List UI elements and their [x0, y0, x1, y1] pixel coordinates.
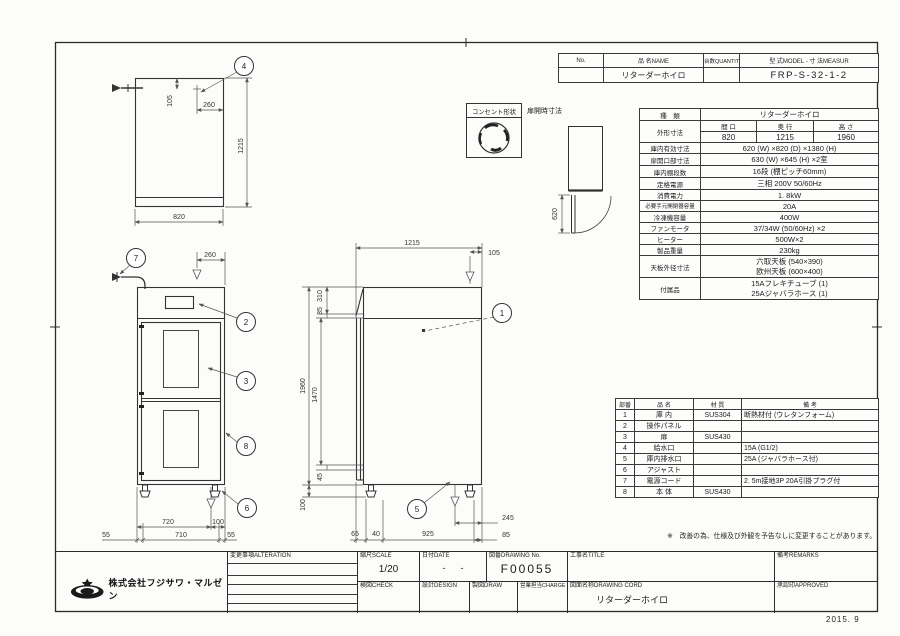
parts-cell-no: 2 [616, 421, 635, 432]
parts-cell-no: 3 [616, 432, 635, 443]
spec-row-label: ヒーター [640, 234, 701, 245]
qty-header: 台数QUANTITY [704, 54, 740, 68]
parts-cell-no: 7 [616, 476, 635, 487]
parts-row: 2操作パネル [616, 421, 879, 432]
parts-cell-name: 電源コード [635, 476, 694, 487]
remarks-label: 備考REMARKS [775, 552, 878, 560]
parts-cell-material [694, 443, 742, 454]
outlet-shape-box: コンセント形状 [467, 104, 522, 158]
side-dim-1470: 1470 [312, 387, 319, 403]
side-legs [366, 485, 475, 497]
company-name: 株式会社フジサワ・マルゼン [108, 576, 227, 602]
spec-row-label: 定格電源 [640, 178, 701, 190]
plan-dim-820: 820 [173, 214, 185, 221]
svg-text:7: 7 [134, 254, 139, 263]
parts-cell-name: 庫内排水口 [635, 454, 694, 465]
spec-table: 種 類 リターダーホイロ 外形寸法 間 口 奥 行 高 さ 820 1215 1… [639, 108, 879, 300]
parts-cell-material [694, 476, 742, 487]
spec-row-line1: 15Aフレキチューブ (1) [701, 279, 878, 289]
parts-cell-name: 給水口 [635, 443, 694, 454]
parts-cell-no: 6 [616, 465, 635, 476]
parts-cell-no: 5 [616, 454, 635, 465]
spec-row-label: 庫内有効寸法 [640, 143, 701, 154]
date-cell: 日付DATE - - [420, 552, 487, 582]
name-value: リターダーホイロ [604, 68, 704, 83]
locking-receptacle-icon [479, 123, 509, 153]
parts-header-name: 品 名 [635, 399, 694, 410]
parts-cell-material: SUS304 [694, 410, 742, 421]
company-logo-icon [69, 578, 105, 600]
water-inlet-icon [112, 84, 143, 92]
name-model-table: No. 品 名NAME 台数QUANTITY 型 式MODEL - 寸 法MEA… [558, 53, 879, 83]
model-value: FRP-S-32-1-2 [740, 68, 879, 83]
parts-row: 6アジャスト [616, 465, 879, 476]
parts-cell-material [694, 465, 742, 476]
sales-charge-label: 営業担当CHARGE [518, 582, 567, 590]
parts-row: 7電源コード2. 5m接地3P 20A引掛プラグ付 [616, 476, 879, 487]
parts-cell-remarks: 断熱材付 (ウレタンフォーム) [742, 410, 879, 421]
door-open-label: 扉開時寸法 [527, 106, 562, 115]
spec-row-label: ファンモータ [640, 223, 701, 234]
side-dim-85: 85 [502, 532, 510, 539]
balloon-4: 4 [235, 57, 254, 76]
spec-row-value: 400W [701, 212, 879, 223]
balloon-7: 7 [127, 249, 146, 268]
svg-text:1: 1 [500, 309, 505, 318]
plan-dim-1215: 1215 [238, 138, 245, 154]
balloon-1: 1 [493, 304, 512, 323]
spec-row-value: 230kg [701, 245, 879, 256]
parts-cell-remarks [742, 487, 879, 498]
parts-cell-material [694, 454, 742, 465]
design-label: 設計DESIGN [420, 582, 469, 590]
balloon-5: 5 [408, 500, 427, 519]
parts-cell-no: 4 [616, 443, 635, 454]
side-view: 1215 105 310 35 1960 1470 45 100 245 85 … [300, 240, 514, 543]
balloon-2: 2 [237, 313, 256, 332]
side-dim-35: 35 [317, 307, 324, 315]
sales-charge-cell: 営業担当CHARGE [518, 582, 568, 613]
svg-text:3: 3 [244, 377, 249, 386]
spec-height-label: 高 さ [814, 121, 879, 132]
side-dim-245: 245 [502, 515, 514, 522]
parts-cell-remarks: 15A (G1/2) [742, 443, 879, 454]
date-label: 日付DATE [420, 552, 486, 560]
spec-row-value: 15Aフレキチューブ (1) 25Aジャバラホース (1) [701, 278, 879, 300]
spec-row-label: 天板外径寸法 [640, 256, 701, 278]
side-dim-40: 40 [372, 531, 380, 538]
front-dim-100: 100 [212, 519, 224, 526]
parts-cell-remarks: 25A (ジャバラホース付) [742, 454, 879, 465]
spec-row-label: 扉開口部寸法 [640, 154, 701, 166]
remarks-cell: 備考REMARKS [775, 552, 878, 582]
project-title-label: 工事名TITLE [568, 552, 774, 560]
balloon-3: 3 [237, 372, 256, 391]
parts-cell-remarks [742, 432, 879, 443]
check-label: 検図CHECK [358, 582, 419, 590]
project-title-cell: 工事名TITLE [568, 552, 775, 582]
spec-row-value: 37/34W (50/60Hz) ×2 [701, 223, 879, 234]
spec-row-label: 消費電力 [640, 190, 701, 201]
front-dim-720: 720 [162, 519, 174, 526]
plan-dim-105: 105 [167, 95, 174, 107]
drawing-canvas: 105 260 1215 820 4 コンセント形状 扉開時寸法 [0, 0, 900, 636]
side-dim-310: 310 [317, 290, 324, 302]
change-notice-note: ※ 改善の為、仕様及び外観を予告なしに変更することがあります。 [598, 530, 876, 540]
drawing-name-cell: 図面名称DRAWING CORD リターダーホイロ [568, 582, 775, 613]
spec-width-label: 間 口 [701, 121, 757, 132]
spec-width-value: 820 [701, 132, 757, 143]
door-dim-620: 620 [552, 208, 559, 220]
spec-row-value: 620 (W) ×820 (D) ×1380 (H) [701, 143, 879, 154]
draw-cell: 製図DRAW [470, 582, 518, 613]
approved-cell: 承認印APPROVED [775, 582, 878, 613]
design-cell: 設計DESIGN [420, 582, 470, 613]
parts-cell-no: 8 [616, 487, 635, 498]
qty-value [704, 68, 740, 83]
spec-row-value: 16段 (棚ピッチ60mm) [701, 166, 879, 178]
parts-row: 5庫内排水口25A (ジャバラホース付) [616, 454, 879, 465]
side-dim-1215: 1215 [404, 240, 420, 247]
spec-row-value: 六取天板 (540×390) 欧州天板 (600×400) [701, 256, 879, 278]
scale-value: 1/20 [358, 560, 419, 578]
spec-height-value: 1960 [814, 132, 879, 143]
alteration-cell: 変更事項ALTERATION [228, 552, 358, 613]
spec-row-value: 500W×2 [701, 234, 879, 245]
spec-row-label: 庫内棚段数 [640, 166, 701, 178]
date-stamp: 2015. 9 [826, 615, 860, 624]
svg-text:5: 5 [415, 505, 420, 514]
svg-text:8: 8 [244, 442, 249, 451]
parts-cell-remarks: 2. 5m接地3P 20A引掛プラグ付 [742, 476, 879, 487]
balloon-8: 8 [237, 437, 256, 456]
spec-row-label: 製品重量 [640, 245, 701, 256]
side-dim-100: 100 [300, 499, 307, 511]
scale-label: 縮尺SCALE [358, 552, 419, 560]
model-header: 型 式MODEL - 寸 法MEASUR [740, 54, 879, 68]
parts-cell-name: アジャスト [635, 465, 694, 476]
drawing-no-value: F00055 [487, 560, 567, 577]
front-dim-260: 260 [204, 252, 216, 259]
side-dim-105: 105 [488, 250, 500, 257]
side-dim-925: 925 [422, 531, 434, 538]
spec-row-value: 三相 200V 50/60Hz [701, 178, 879, 190]
approved-label: 承認印APPROVED [775, 582, 878, 590]
door-open-view: 扉開時寸法 620 [527, 106, 611, 233]
spec-row-value: 630 (W) ×645 (H) ×2室 [701, 154, 879, 166]
spec-row-line1: 六取天板 (540×390) [701, 257, 878, 267]
alteration-label: 変更事項ALTERATION [228, 552, 357, 560]
spec-row-value: 1. 8kW [701, 190, 879, 201]
company-cell: 株式会社フジサワ・マルゼン [55, 552, 228, 613]
spec-row-value: 20A [701, 201, 879, 212]
spec-row-label: 付属品 [640, 278, 701, 300]
spec-kind-label: 種 類 [640, 109, 701, 121]
side-dim-65: 65 [351, 531, 359, 538]
plan-view: 105 260 1215 820 4 [112, 57, 254, 227]
parts-cell-no: 1 [616, 410, 635, 421]
parts-cell-material: SUS430 [694, 487, 742, 498]
check-cell: 検図CHECK [358, 582, 420, 613]
spec-row-line2: 25Aジャバラホース (1) [701, 289, 878, 299]
svg-text:4: 4 [242, 62, 247, 71]
svg-text:6: 6 [245, 504, 250, 513]
drawing-name-label: 図面名称DRAWING CORD [568, 582, 774, 590]
drawing-sheet: 105 260 1215 820 4 コンセント形状 扉開時寸法 [0, 0, 900, 636]
parts-cell-name: 操作パネル [635, 421, 694, 432]
parts-cell-material: SUS430 [694, 432, 742, 443]
front-legs [140, 485, 220, 497]
side-dim-45: 45 [317, 473, 324, 481]
front-dim-710: 710 [175, 532, 187, 539]
outlet-label: コンセント形状 [472, 107, 517, 116]
parts-table: 部番 品 名 材 質 備 考 1庫 内SUS304断熱材付 (ウレタンフォーム)… [615, 398, 879, 498]
spec-outer-label: 外形寸法 [640, 121, 701, 143]
parts-cell-remarks [742, 421, 879, 432]
spec-row-label: 必要手元開閉器容量 [640, 201, 701, 212]
date-value: - - [420, 560, 486, 576]
front-view: 260 720 100 55 710 55 7 2 3 8 6 [102, 249, 257, 544]
parts-cell-name: 庫 内 [635, 410, 694, 421]
no-value [559, 68, 604, 83]
drawing-no-cell: 図番DRAWING No. F00055 [487, 552, 568, 582]
spec-row-label: 冷凍機容量 [640, 212, 701, 223]
parts-cell-material [694, 421, 742, 432]
balloon-6: 6 [238, 499, 257, 518]
parts-cell-name: 本 体 [635, 487, 694, 498]
parts-cell-name: 扉 [635, 432, 694, 443]
svg-text:2: 2 [244, 318, 249, 327]
draw-label: 製図DRAW [470, 582, 517, 590]
drawing-no-label: 図番DRAWING No. [487, 552, 567, 560]
plan-dim-260: 260 [203, 102, 215, 109]
parts-row: 3扉SUS430 [616, 432, 879, 443]
spec-depth-label: 奥 行 [757, 121, 814, 132]
parts-row: 8本 体SUS430 [616, 487, 879, 498]
spec-row-line2: 欧州天板 (600×400) [701, 267, 878, 277]
parts-cell-remarks [742, 465, 879, 476]
spec-depth-value: 1215 [757, 132, 814, 143]
parts-header-remarks: 備 考 [742, 399, 879, 410]
front-dim-55-right: 55 [227, 532, 235, 539]
parts-row: 4給水口15A (G1/2) [616, 443, 879, 454]
parts-row: 1庫 内SUS304断熱材付 (ウレタンフォーム) [616, 410, 879, 421]
no-header: No. [559, 54, 604, 68]
scale-cell: 縮尺SCALE 1/20 [358, 552, 420, 582]
drawing-name-value: リターダーホイロ [568, 590, 774, 606]
parts-header-material: 材 質 [694, 399, 742, 410]
title-block: 株式会社フジサワ・マルゼン 変更事項ALTERATION 縮尺SCALE 1/2… [55, 551, 878, 613]
faucet-icon [112, 272, 145, 289]
front-dim-55-left: 55 [102, 532, 110, 539]
parts-header-no: 部番 [616, 399, 635, 410]
spec-kind-value: リターダーホイロ [701, 109, 879, 121]
name-header: 品 名NAME [604, 54, 704, 68]
side-dim-1960: 1960 [300, 378, 307, 394]
